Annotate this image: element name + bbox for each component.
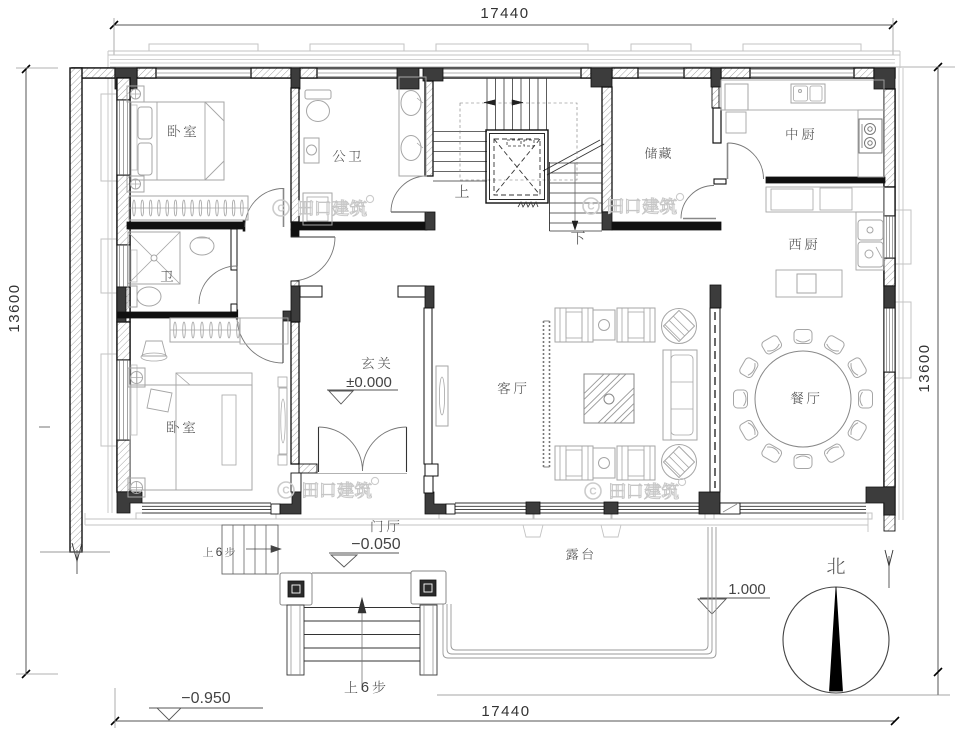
svg-text:C: C bbox=[277, 204, 284, 215]
svg-text:C: C bbox=[587, 202, 594, 213]
svg-text:13600: 13600 bbox=[6, 283, 23, 332]
svg-text:17440: 17440 bbox=[481, 703, 530, 720]
svg-text:−0.050: −0.050 bbox=[351, 536, 400, 553]
svg-text:1.000: 1.000 bbox=[728, 581, 766, 598]
svg-text:13600: 13600 bbox=[916, 343, 933, 392]
svg-text:−0.950: −0.950 bbox=[181, 690, 230, 707]
svg-text:17440: 17440 bbox=[480, 5, 529, 22]
svg-text:±0.000: ±0.000 bbox=[346, 374, 392, 391]
svg-text:6: 6 bbox=[361, 680, 369, 696]
svg-text:C: C bbox=[589, 487, 596, 498]
svg-text:6: 6 bbox=[216, 546, 222, 559]
svg-text:C: C bbox=[282, 486, 289, 497]
